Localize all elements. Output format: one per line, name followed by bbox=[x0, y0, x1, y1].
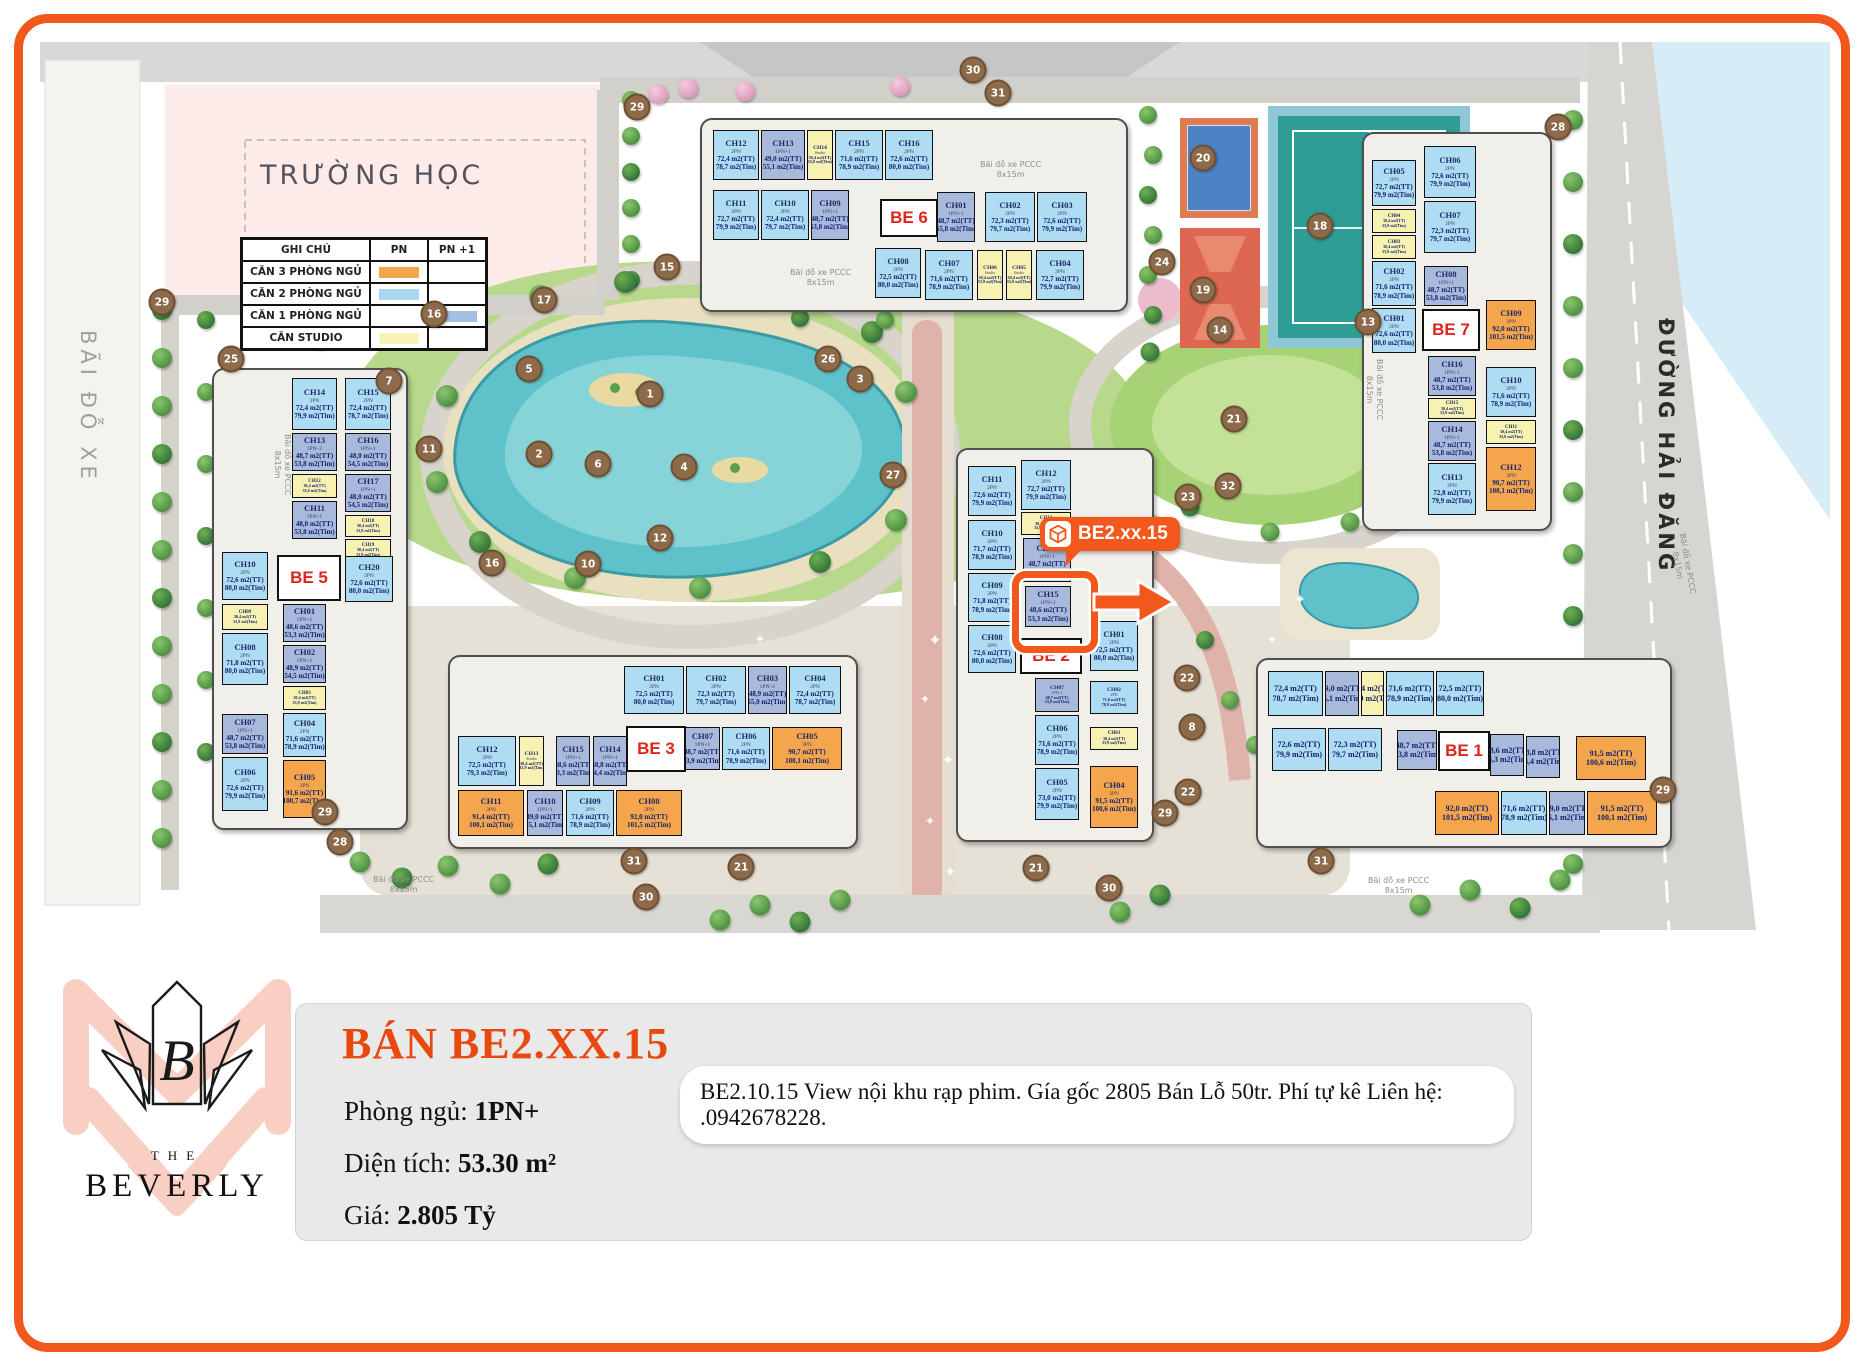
star-icon: ✦ bbox=[755, 633, 766, 648]
tree-icon bbox=[152, 348, 172, 368]
tree-icon bbox=[1144, 306, 1162, 324]
unit-be3-ch11[interactable]: CH113PN91,4 m2(TT)100,1 m2(Tim) bbox=[458, 790, 524, 836]
legend-row: CĂN 2 PHÒNG NGỦ bbox=[242, 283, 486, 305]
legend-row: CĂN STUDIO bbox=[242, 327, 486, 349]
unit-be5-ch01[interactable]: CH011PN+148,6 m2(TT)53,3 m2(Tim) bbox=[283, 604, 326, 642]
map-marker: 30 bbox=[960, 57, 987, 84]
unit-be1[interactable]: 30,4 m2(TT)33,9 m2(Tim) bbox=[1361, 671, 1384, 716]
tree-icon bbox=[710, 910, 731, 931]
tree-icon bbox=[152, 492, 172, 512]
price-value: 2.805 Tỷ bbox=[397, 1200, 496, 1230]
legend-header-cell: GHI CHÚ bbox=[242, 239, 370, 261]
unit-be3-ch04[interactable]: CH042PN72,4 m2(TT)78,7 m2(Tim) bbox=[789, 666, 841, 714]
unit-be5-ch11[interactable]: CH111PN+148,0 m2(TT)53,8 m2(Tim) bbox=[292, 501, 337, 539]
unit-be2-ch05[interactable]: CH052PN73,0 m2(TT)79,9 m2(Tim) bbox=[1035, 768, 1079, 820]
map-marker: 29 bbox=[149, 289, 176, 316]
star-icon: ✦ bbox=[1267, 633, 1277, 647]
unit-be7-ch12[interactable]: CH123PN90,7 m2(TT)100,1 m2(Tim) bbox=[1486, 447, 1536, 511]
site-plan-page: BÃI ĐỖ XE ĐƯỜNG HẢI ĐĂNG TRƯỜNG HỌC GHI … bbox=[0, 0, 1864, 1366]
listing-title: BÁN BE2.XX.15 bbox=[342, 1018, 669, 1069]
map-marker: 15 bbox=[654, 254, 681, 281]
map-marker: 21 bbox=[1221, 406, 1248, 433]
unit-callout-bubble[interactable]: BE2.xx.15 bbox=[1040, 517, 1180, 551]
map-marker: 31 bbox=[1308, 848, 1335, 875]
unit-be6-ch06[interactable]: CH06Studio30,4 m2(TT)33,9 m2(Tim) bbox=[977, 250, 1003, 300]
building-label-be7: BE 7 bbox=[1422, 309, 1480, 351]
blossom-tree-icon bbox=[890, 76, 910, 96]
tree-icon bbox=[1150, 885, 1171, 906]
map-marker: 29 bbox=[624, 94, 651, 121]
unit-be1[interactable]: 49,0 m2(TT)55,1 m2(Tim) bbox=[1549, 791, 1585, 835]
unit-be2-ch10[interactable]: CH102PN71,7 m2(TT)78,9 m2(Tim) bbox=[968, 520, 1016, 570]
unit-be7-ch05[interactable]: CH052PN72,7 m2(TT)79,9 m2(Tim) bbox=[1372, 160, 1416, 206]
pccc-parking-label: Bãi đỗ xe PCCC8x15m bbox=[373, 875, 434, 894]
pccc-parking-label: Bãi đỗ xe PCCC8x15m bbox=[980, 160, 1041, 179]
blossom-tree-icon bbox=[735, 81, 755, 101]
unit-be7-ch08[interactable]: CH081PN+148,7 m2(TT)53,8 m2(Tim) bbox=[1424, 266, 1468, 306]
project-logo-icon bbox=[1045, 521, 1071, 547]
tree-icon bbox=[1563, 172, 1583, 192]
map-marker: 12 bbox=[647, 525, 674, 552]
map-marker: 29 bbox=[1152, 800, 1179, 827]
map-marker: 25 bbox=[218, 346, 245, 373]
blossom-tree-icon bbox=[648, 84, 668, 104]
tree-icon bbox=[152, 588, 172, 608]
legend-color-cell bbox=[370, 261, 428, 283]
tree-icon bbox=[438, 856, 459, 877]
map-marker: 17 bbox=[531, 287, 558, 314]
pccc-parking-label: Bãi đỗ xe PCCC8x15m bbox=[1365, 359, 1384, 420]
tree-icon bbox=[1510, 898, 1531, 919]
unit-be2-ch12[interactable]: CH122PN72,7 m2(TT)79,9 m2(Tim) bbox=[1021, 460, 1071, 510]
school-area-label: TRƯỜNG HỌC bbox=[260, 160, 483, 191]
unit-be5-ch03[interactable]: CH03Studio30,4 m2(TT)33,9 m2(Tim) bbox=[283, 686, 326, 710]
unit-be5-ch02[interactable]: CH021PN+148,9 m2(TT)54,5 m2(Tim) bbox=[283, 645, 326, 683]
map-marker: 31 bbox=[985, 80, 1012, 107]
unit-be6-ch08[interactable]: CH082PN72,5 m2(TT)80,0 m2(Tim) bbox=[875, 248, 921, 298]
unit-be7-ch07[interactable]: CH072PN72,3 m2(TT)79,7 m2(Tim) bbox=[1424, 201, 1476, 253]
unit-be7-ch15[interactable]: CH15Studio30,4 m2(TT)33,9 m2(Tim) bbox=[1428, 398, 1476, 419]
unit-be2-ch07[interactable]: CH071PN+148,7 m2(TT)53,8 m2(Tim) bbox=[1035, 678, 1079, 712]
unit-be6-ch12[interactable]: CH122PN72,4 m2(TT)78,7 m2(Tim) bbox=[713, 130, 759, 180]
unit-be1[interactable]: 49,0 m2(TT)55,1 m2(Tim) bbox=[1325, 671, 1359, 716]
tree-icon bbox=[350, 852, 371, 873]
map-marker: 29 bbox=[312, 799, 339, 826]
unit-be5-ch14[interactable]: CH142PN72,4 m2(TT)79,9 m2(Tim) bbox=[292, 378, 337, 430]
bedrooms-value: 1PN+ bbox=[475, 1096, 540, 1126]
unit-be6-ch09[interactable]: CH091PN+148,7 m2(TT)53,8 m2(Tim) bbox=[811, 190, 849, 240]
unit-be7-ch06[interactable]: CH062PN72,6 m2(TT)79,9 m2(Tim) bbox=[1424, 146, 1476, 198]
tree-icon bbox=[1460, 880, 1481, 901]
tree-icon bbox=[152, 444, 172, 464]
bedrooms-row: Phòng ngủ: 1PN+ bbox=[344, 1096, 539, 1127]
map-marker: 14 bbox=[1207, 317, 1234, 344]
map-marker: 29 bbox=[1650, 777, 1677, 804]
unit-be2-ch09[interactable]: CH092PN71,8 m2(TT)78,9 m2(Tim) bbox=[968, 573, 1016, 622]
unit-be3-ch06[interactable]: CH062PN71,6 m2(TT)78,9 m2(Tim) bbox=[722, 727, 770, 770]
unit-be2-ch06[interactable]: CH062PN71,6 m2(TT)78,9 m2(Tim) bbox=[1035, 715, 1079, 765]
unit-be3-ch01[interactable]: CH012PN72,5 m2(TT)80,0 m2(Tim) bbox=[624, 666, 684, 714]
tree-icon bbox=[790, 912, 811, 933]
legend-row: CĂN 3 PHÒNG NGỦ bbox=[242, 261, 486, 283]
unit-be5-ch08[interactable]: CH082PN71,8 m2(TT)80,0 m2(Tim) bbox=[222, 633, 268, 685]
map-marker: 1 bbox=[637, 381, 664, 408]
unit-be5-ch12[interactable]: CH12Studio30,4 m2(TT)33,9 m2(Tim) bbox=[292, 474, 337, 498]
unit-be7-ch03[interactable]: CH03Studio30,4 m2(TT)33,9 m2(Tim) bbox=[1372, 235, 1416, 259]
unit-be5-ch20[interactable]: CH202PN72,6 m2(TT)80,0 m2(Tim) bbox=[345, 556, 393, 602]
map-marker: 28 bbox=[1545, 114, 1572, 141]
unit-be3-ch12[interactable]: CH122PN72,5 m2(TT)79,3 m2(Tim) bbox=[458, 736, 516, 786]
unit-be7-ch11[interactable]: CH11Studio30,4 m2(TT)33,9 m2(Tim) bbox=[1486, 420, 1536, 444]
map-marker: 30 bbox=[1096, 875, 1123, 902]
tree-icon bbox=[1550, 870, 1571, 891]
listing-note: BE2.10.15 View nội khu rạp phim. Gía gốc… bbox=[680, 1066, 1514, 1144]
unit-be6-ch15[interactable]: CH152PN71,6 m2(TT)78,9 m2(Tim) bbox=[835, 130, 883, 180]
tree-icon bbox=[1196, 631, 1214, 649]
basketball-court bbox=[1180, 118, 1258, 218]
tree-icon bbox=[1563, 544, 1583, 564]
tree-icon bbox=[1221, 691, 1239, 709]
tree-icon bbox=[689, 577, 711, 599]
tree-icon bbox=[1563, 234, 1583, 254]
unit-be5-ch06[interactable]: CH062PN72,6 m2(TT)79,9 m2(Tim) bbox=[222, 757, 268, 811]
map-marker: 11 bbox=[416, 436, 443, 463]
map-marker: 21 bbox=[728, 854, 755, 881]
legend-color-chip bbox=[379, 289, 419, 300]
legend-color-cell bbox=[370, 327, 428, 349]
building-label-be1: BE 1 bbox=[1438, 731, 1490, 771]
price-label: Giá: bbox=[344, 1200, 397, 1230]
blossom-tree-icon bbox=[678, 78, 698, 98]
tree-icon bbox=[750, 895, 771, 916]
map-marker: 32 bbox=[1215, 473, 1242, 500]
tree-icon bbox=[1563, 482, 1583, 502]
logo-word-beverly: BEVERLY bbox=[58, 1168, 296, 1205]
tree-icon bbox=[152, 732, 172, 752]
tree-icon bbox=[614, 271, 636, 293]
legend-color-chip bbox=[379, 333, 419, 344]
unit-be3-ch07[interactable]: CH071PN+148,7 m2(TT)53,9 m2(Tim) bbox=[685, 727, 720, 770]
unit-be3-ch05[interactable]: CH053PN90,7 m2(TT)100,1 m2(Tim) bbox=[772, 727, 842, 770]
legend-color-cell bbox=[428, 261, 486, 283]
unit-be1[interactable]: 92,0 m2(TT)101,5 m2(Tim) bbox=[1435, 791, 1499, 835]
unit-be3-ch13[interactable]: CH13Studio30,4 m2(TT)33,9 m2(Tim) bbox=[519, 736, 544, 786]
unit-be3-ch02[interactable]: CH022PN72,3 m2(TT)79,7 m2(Tim) bbox=[686, 666, 746, 714]
unit-be6-ch01[interactable]: CH011PN+148,7 m2(TT)55,8 m2(Tim) bbox=[937, 192, 975, 242]
legend-row: CĂN 1 PHÒNG NGỦ bbox=[242, 305, 486, 327]
unit-be6-ch07[interactable]: CH072PN71,6 m2(TT)78,9 m2(Tim) bbox=[925, 250, 973, 300]
tree-icon bbox=[152, 684, 172, 704]
map-marker: 2 bbox=[526, 441, 553, 468]
star-icon: ✦ bbox=[1253, 571, 1264, 586]
svg-text:B: B bbox=[159, 1028, 194, 1093]
building-label-be3: BE 3 bbox=[626, 726, 686, 772]
pccc-parking-label: Bãi đỗ xe PCCC8x15m bbox=[790, 268, 851, 287]
unit-be7-ch10[interactable]: CH102PN71,6 m2(TT)78,9 m2(Tim) bbox=[1486, 367, 1536, 417]
star-icon: ✦ bbox=[925, 815, 936, 830]
unit-be1[interactable]: 71,6 m2(TT)78,9 m2(Tim) bbox=[1501, 791, 1547, 835]
tree-icon bbox=[622, 199, 640, 217]
tree-icon bbox=[1110, 902, 1131, 923]
unit-be5-ch16[interactable]: CH161PN+148,0 m2(TT)54,5 m2(Tim) bbox=[345, 433, 391, 471]
legend-row-label: CĂN 3 PHÒNG NGỦ bbox=[242, 261, 370, 283]
legend-header-cell: PN bbox=[370, 239, 428, 261]
map-marker: 3 bbox=[847, 366, 874, 393]
parking-area-label: BÃI ĐỖ XE bbox=[76, 330, 100, 484]
map-marker: 23 bbox=[1175, 484, 1202, 511]
unit-be1[interactable]: 91,5 m2(TT)100,1 m2(Tim) bbox=[1587, 791, 1657, 835]
tree-icon bbox=[876, 311, 894, 329]
tree-icon bbox=[490, 874, 511, 895]
unit-be7-ch13[interactable]: CH132PN72,8 m2(TT)79,9 m2(Tim) bbox=[1428, 463, 1476, 515]
unit-be6-ch02[interactable]: CH022PN72,3 m2(TT)79,7 m2(Tim) bbox=[985, 192, 1035, 242]
legend-header: GHI CHÚPNPN +1 bbox=[242, 239, 486, 261]
legend-table: GHI CHÚPNPN +1CĂN 3 PHÒNG NGỦCĂN 2 PHÒNG… bbox=[240, 237, 488, 351]
legend-color-cell bbox=[428, 327, 486, 349]
star-icon: ✦ bbox=[942, 751, 955, 769]
unit-be3-ch08[interactable]: CH083PN92,0 m2(TT)101,5 m2(Tim) bbox=[616, 790, 682, 836]
unit-be2-ch02[interactable]: CH022PN71,6 m2(TT)78,9 m2(Tim) bbox=[1090, 681, 1138, 714]
highlighted-unit-ring bbox=[1012, 571, 1098, 653]
area-row: Diện tích: 53.30 m² bbox=[344, 1148, 556, 1179]
tree-icon bbox=[152, 636, 172, 656]
tree-icon bbox=[152, 396, 172, 416]
map-marker: 24 bbox=[1149, 249, 1176, 276]
unit-be3-ch14[interactable]: CH141PN+148,8 m2(TT)54,4 m2(Tim) bbox=[593, 736, 627, 786]
unit-be7-ch09[interactable]: CH093PN92,0 m2(TT)101,5 m2(Tim) bbox=[1486, 300, 1536, 350]
pccc-parking-label: Bãi đỗ xe PCCC8x15m bbox=[273, 434, 292, 495]
unit-be5-ch07[interactable]: CH071PN+148,7 m2(TT)53,8 m2(Tim) bbox=[222, 714, 268, 754]
unit-be3-ch15[interactable]: CH151PN+148,6 m2(TT)53,3 m2(Tim) bbox=[556, 736, 590, 786]
unit-be6-ch03[interactable]: CH032PN72,6 m2(TT)79,9 m2(Tim) bbox=[1037, 192, 1087, 242]
unit-be2-ch11[interactable]: CH112PN72,6 m2(TT)79,9 m2(Tim) bbox=[968, 466, 1016, 516]
star-icon: ✦ bbox=[1294, 592, 1306, 608]
map-marker: 31 bbox=[621, 848, 648, 875]
logo-word-the: THE bbox=[58, 1148, 296, 1164]
tree-icon bbox=[830, 890, 851, 911]
unit-be6-ch16[interactable]: CH162PN72,6 m2(TT)80,0 m2(Tim) bbox=[885, 130, 933, 180]
area-value: 53.30 m² bbox=[458, 1148, 556, 1178]
unit-be2-ch08[interactable]: CH082PN72,6 m2(TT)80,0 m2(Tim) bbox=[968, 625, 1016, 673]
map-marker: 20 bbox=[1190, 145, 1217, 172]
star-icon: ✦ bbox=[920, 693, 931, 708]
brand-logo: B THE BEVERLY bbox=[58, 952, 296, 1248]
tree-icon bbox=[1144, 226, 1162, 244]
unit-be3-ch03[interactable]: CH031PN+148,9 m2(TT)55,0 m2(Tim) bbox=[748, 666, 787, 714]
unit-be6-ch14[interactable]: CH14Studio30,4 m2(TT)33,9 m2(Tim) bbox=[807, 130, 833, 180]
building-label-be5: BE 5 bbox=[277, 555, 341, 601]
star-icon: ✦ bbox=[928, 631, 941, 650]
unit-be2-ch03[interactable]: CH03Studio30,4 m2(TT)33,9 m2(Tim) bbox=[1090, 727, 1138, 750]
map-marker: 10 bbox=[575, 551, 602, 578]
unit-be1[interactable]: 71,6 m2(TT)78,9 m2(Tim) bbox=[1386, 671, 1434, 716]
tree-icon bbox=[538, 854, 559, 875]
legend-row-label: CĂN 1 PHÒNG NGỦ bbox=[242, 305, 370, 327]
map-marker: 13 bbox=[1355, 309, 1382, 336]
unit-be5-ch18[interactable]: CH18Studio30,4 m2(TT)33,9 m2(Tim) bbox=[345, 515, 391, 537]
map-marker: 6 bbox=[585, 451, 612, 478]
map-marker: 27 bbox=[880, 462, 907, 489]
unit-be1[interactable]: 48,8 m2(TT)54,4 m2(Tim) bbox=[1526, 736, 1560, 778]
unit-be7-ch04[interactable]: CH04Studio30,4 m2(TT)33,9 m2(Tim) bbox=[1372, 209, 1416, 233]
map-marker: 26 bbox=[815, 346, 842, 373]
unit-be6-ch10[interactable]: CH102PN72,4 m2(TT)79,7 m2(Tim) bbox=[761, 190, 809, 240]
unit-be1[interactable]: 48,7 m2(TT)53,8 m2(Tim) bbox=[1397, 730, 1437, 770]
tree-icon bbox=[1139, 106, 1157, 124]
callout-label: BE2.xx.15 bbox=[1078, 523, 1168, 545]
tree-icon bbox=[1261, 523, 1280, 542]
tree-icon bbox=[152, 780, 172, 800]
tree-icon bbox=[1141, 343, 1160, 362]
map-marker: 28 bbox=[327, 829, 354, 856]
unit-be5-ch04[interactable]: CH042PN71,6 m2(TT)78,9 m2(Tim) bbox=[283, 713, 326, 757]
map-marker: 21 bbox=[1023, 855, 1050, 882]
tree-icon bbox=[622, 127, 640, 145]
unit-be3-ch09[interactable]: CH092PN71,6 m2(TT)78,9 m2(Tim) bbox=[566, 790, 614, 836]
tree-icon bbox=[885, 509, 907, 531]
tree-icon bbox=[1563, 606, 1583, 626]
pccc-parking-label: Bãi đỗ xe PCCC8x15m bbox=[1368, 876, 1429, 895]
map-marker: 22 bbox=[1174, 665, 1201, 692]
tree-icon bbox=[1341, 513, 1360, 532]
legend-row-label: CĂN STUDIO bbox=[242, 327, 370, 349]
tree-icon bbox=[1139, 186, 1157, 204]
map-marker: 4 bbox=[671, 454, 698, 481]
unit-be5-ch10[interactable]: CH102PN72,6 m2(TT)80,0 m2(Tim) bbox=[222, 552, 268, 600]
listing-panel: BÁN BE2.XX.15 Phòng ngủ: 1PN+ Diện tích:… bbox=[295, 1003, 1532, 1241]
legend-color-cell bbox=[370, 283, 428, 305]
unit-be1[interactable]: 72,4 m2(TT)78,7 m2(Tim) bbox=[1268, 671, 1323, 716]
unit-be5-ch13[interactable]: CH131PN+148,7 m2(TT)53,8 m2(Tim) bbox=[292, 433, 337, 471]
tree-icon bbox=[197, 311, 215, 329]
unit-be7-ch16[interactable]: CH161PN+148,7 m2(TT)53,8 m2(Tim) bbox=[1428, 356, 1476, 396]
map-marker: 5 bbox=[516, 356, 543, 383]
map-marker: 16 bbox=[421, 301, 448, 328]
tree-icon bbox=[436, 385, 458, 407]
tree-icon bbox=[622, 163, 640, 181]
map-marker: 19 bbox=[1190, 277, 1217, 304]
map-marker: 18 bbox=[1307, 213, 1334, 240]
unit-be1[interactable]: 48,6 m2(TT)53,3 m2(Tim) bbox=[1490, 734, 1524, 776]
unit-be5-ch17[interactable]: CH171PN+148,0 m2(TT)54,5 m2(Tim) bbox=[345, 474, 391, 512]
unit-be7-ch02[interactable]: CH022PN71,6 m2(TT)78,9 m2(Tim) bbox=[1372, 261, 1416, 306]
bedrooms-label: Phòng ngủ: bbox=[344, 1096, 475, 1126]
map-marker: 7 bbox=[376, 368, 403, 395]
unit-be6-ch11[interactable]: CH112PN72,7 m2(TT)79,9 m2(Tim) bbox=[713, 190, 759, 240]
legend-row-label: CĂN 2 PHÒNG NGỦ bbox=[242, 283, 370, 305]
area-label: Diện tích: bbox=[344, 1148, 458, 1178]
tree-icon bbox=[622, 235, 640, 253]
unit-be6-ch05[interactable]: CH05Studio30,4 m2(TT)33,9 m2(Tim) bbox=[1006, 250, 1032, 300]
tree-icon bbox=[1563, 358, 1583, 378]
unit-be2-ch04[interactable]: CH043PN91,5 m2(TT)100,6 m2(Tim) bbox=[1090, 766, 1138, 828]
legend-color-chip bbox=[379, 267, 419, 278]
building-label-be6: BE 6 bbox=[880, 199, 938, 237]
unit-be7-ch14[interactable]: CH141PN+148,7 m2(TT)53,8 m2(Tim) bbox=[1428, 421, 1476, 461]
legend-color-cell bbox=[370, 305, 428, 327]
tree-icon bbox=[1563, 296, 1583, 316]
map-marker: 16 bbox=[479, 550, 506, 577]
map-marker: 30 bbox=[633, 884, 660, 911]
tree-icon bbox=[1563, 420, 1583, 440]
legend-header-cell: PN +1 bbox=[428, 239, 486, 261]
tree-icon bbox=[1144, 146, 1162, 164]
map-marker: 22 bbox=[1175, 779, 1202, 806]
unit-be6-ch04[interactable]: CH042PN72,7 m2(TT)79,9 m2(Tim) bbox=[1036, 250, 1084, 300]
tree-icon bbox=[426, 471, 448, 493]
tree-icon bbox=[152, 828, 172, 848]
unit-be1[interactable]: 72,6 m2(TT)79,9 m2(Tim) bbox=[1272, 728, 1326, 771]
tree-icon bbox=[809, 551, 831, 573]
tree-icon bbox=[895, 381, 917, 403]
unit-be1[interactable]: 91,5 m2(TT)100,6 m2(Tim) bbox=[1576, 736, 1646, 780]
tree-icon bbox=[152, 540, 172, 560]
tree-icon bbox=[1410, 895, 1431, 916]
unit-be1[interactable]: 72,5 m2(TT)80,0 m2(Tim) bbox=[1436, 671, 1484, 716]
map-marker: 8 bbox=[1179, 714, 1206, 741]
pointer-arrow-icon bbox=[1092, 578, 1178, 626]
unit-be3-ch10[interactable]: CH101PN+149,0 m2(TT)55,1 m2(Tim) bbox=[527, 790, 563, 836]
unit-be5-ch09[interactable]: CH09Studio30,4 m2(TT)33,9 m2(Tim) bbox=[222, 604, 268, 630]
price-row: Giá: 2.805 Tỷ bbox=[344, 1200, 496, 1231]
unit-be1[interactable]: 72,3 m2(TT)79,7 m2(Tim) bbox=[1328, 728, 1382, 771]
unit-be6-ch13[interactable]: CH131PN+149,0 m2(TT)55,1 m2(Tim) bbox=[761, 130, 805, 180]
star-icon: ✦ bbox=[944, 863, 957, 881]
